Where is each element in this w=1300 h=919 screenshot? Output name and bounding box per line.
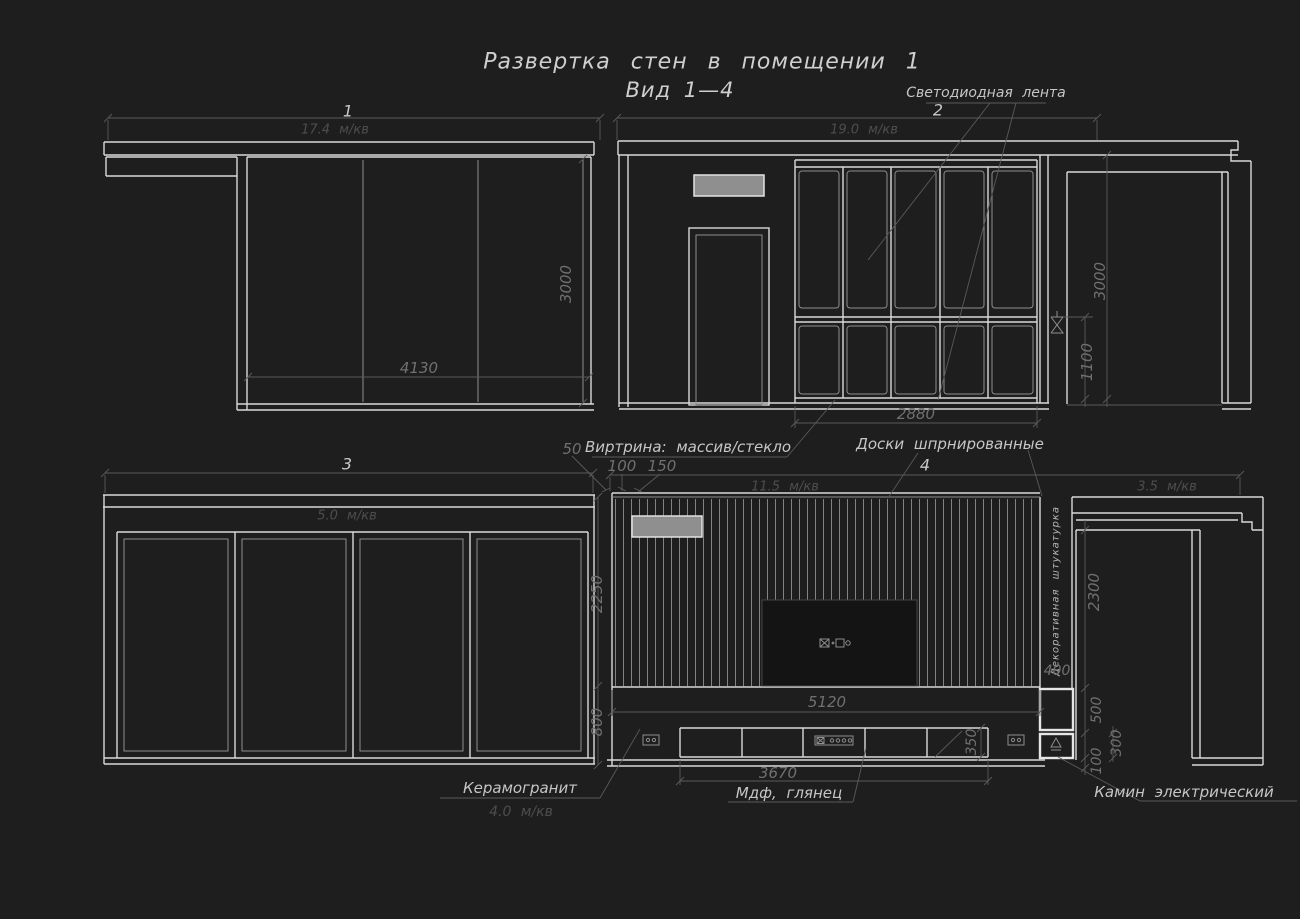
ceramic-area: 4.0 м/кв (489, 804, 553, 820)
drawing-subtitle: Вид 1—4 (626, 78, 735, 102)
view4-dim-wall-height: 2250 (588, 575, 606, 613)
fireplace-symbol (1051, 738, 1061, 750)
vent-grille (632, 516, 702, 537)
view4-dim-opening-height: 2300 (1085, 573, 1103, 611)
vent-grille (694, 175, 764, 196)
layer-dim-50: 50 (562, 440, 581, 458)
view2-wall-elevation (592, 103, 1251, 457)
view3-label: 3 (342, 455, 352, 474)
socket-icon (643, 735, 659, 745)
cabinet-panels (799, 171, 1033, 394)
socket-icon (1008, 735, 1024, 745)
view2-label: 2 (933, 101, 943, 120)
view4-label: 4 (920, 456, 930, 475)
view4-dim-fireplace: 500 (1089, 697, 1105, 724)
view4-dim-hearth: 300 (1109, 730, 1125, 757)
fireplace-hearth (1040, 734, 1073, 758)
wall-lamp-icon (1051, 311, 1063, 333)
vitrine-annotation: Виртрина: массив/стекло (585, 438, 791, 456)
drawing-title: Развертка стен в помещении 1 (483, 50, 920, 75)
layer-dim-100: 100 (608, 457, 637, 475)
view3-area: 5.0 м/кв (317, 509, 377, 524)
layer-dim-150: 150 (648, 457, 677, 475)
mdf-annotation: Мдф, глянец (736, 784, 842, 802)
view4-dim-plinth: 100 (1089, 748, 1105, 775)
view1-wall-elevation (104, 114, 604, 410)
view4-wall-elevation (440, 450, 1297, 802)
plaster-annotation: Декоративная штукатурка (1051, 506, 1062, 676)
view4-dim-plaster: 400 (1044, 663, 1071, 679)
view4-dim-console-width: 3670 (759, 764, 797, 782)
view1-label: 1 (343, 102, 353, 121)
socket-group-icon (815, 736, 853, 745)
boards-annotation: Доски шпрнированные (856, 435, 1044, 453)
view4-dim-wall-width: 5120 (808, 693, 846, 711)
fireplace-box (1040, 689, 1073, 730)
tv-screen (762, 600, 917, 686)
ceramic-annotation: Керамогранит (463, 779, 577, 797)
view4-dim-console-depth: 350 (964, 729, 980, 756)
view4-dim-console-zone: 800 (588, 708, 606, 737)
view1-dim-width: 4130 (400, 359, 438, 377)
view4-area-right: 3.5 м/кв (1137, 480, 1197, 495)
view4-area-left: 11.5 м/кв (751, 480, 819, 495)
door (689, 228, 769, 405)
view2-dim-cabinet: 2880 (897, 405, 935, 423)
led-strip-annotation: Светодиодная лента (906, 85, 1065, 101)
fireplace-annotation: Камин электрический (1094, 783, 1274, 801)
view1-dim-height: 3000 (557, 265, 575, 303)
view1-area: 17.4 м/кв (301, 123, 369, 138)
drawing-canvas: Развертка стен в помещении 1 Вид 1—4 1 1… (0, 0, 1300, 919)
view2-area: 19.0 м/кв (830, 123, 898, 138)
view2-dim-height: 3000 (1091, 262, 1109, 300)
view2-dim-led: 1100 (1078, 343, 1096, 381)
